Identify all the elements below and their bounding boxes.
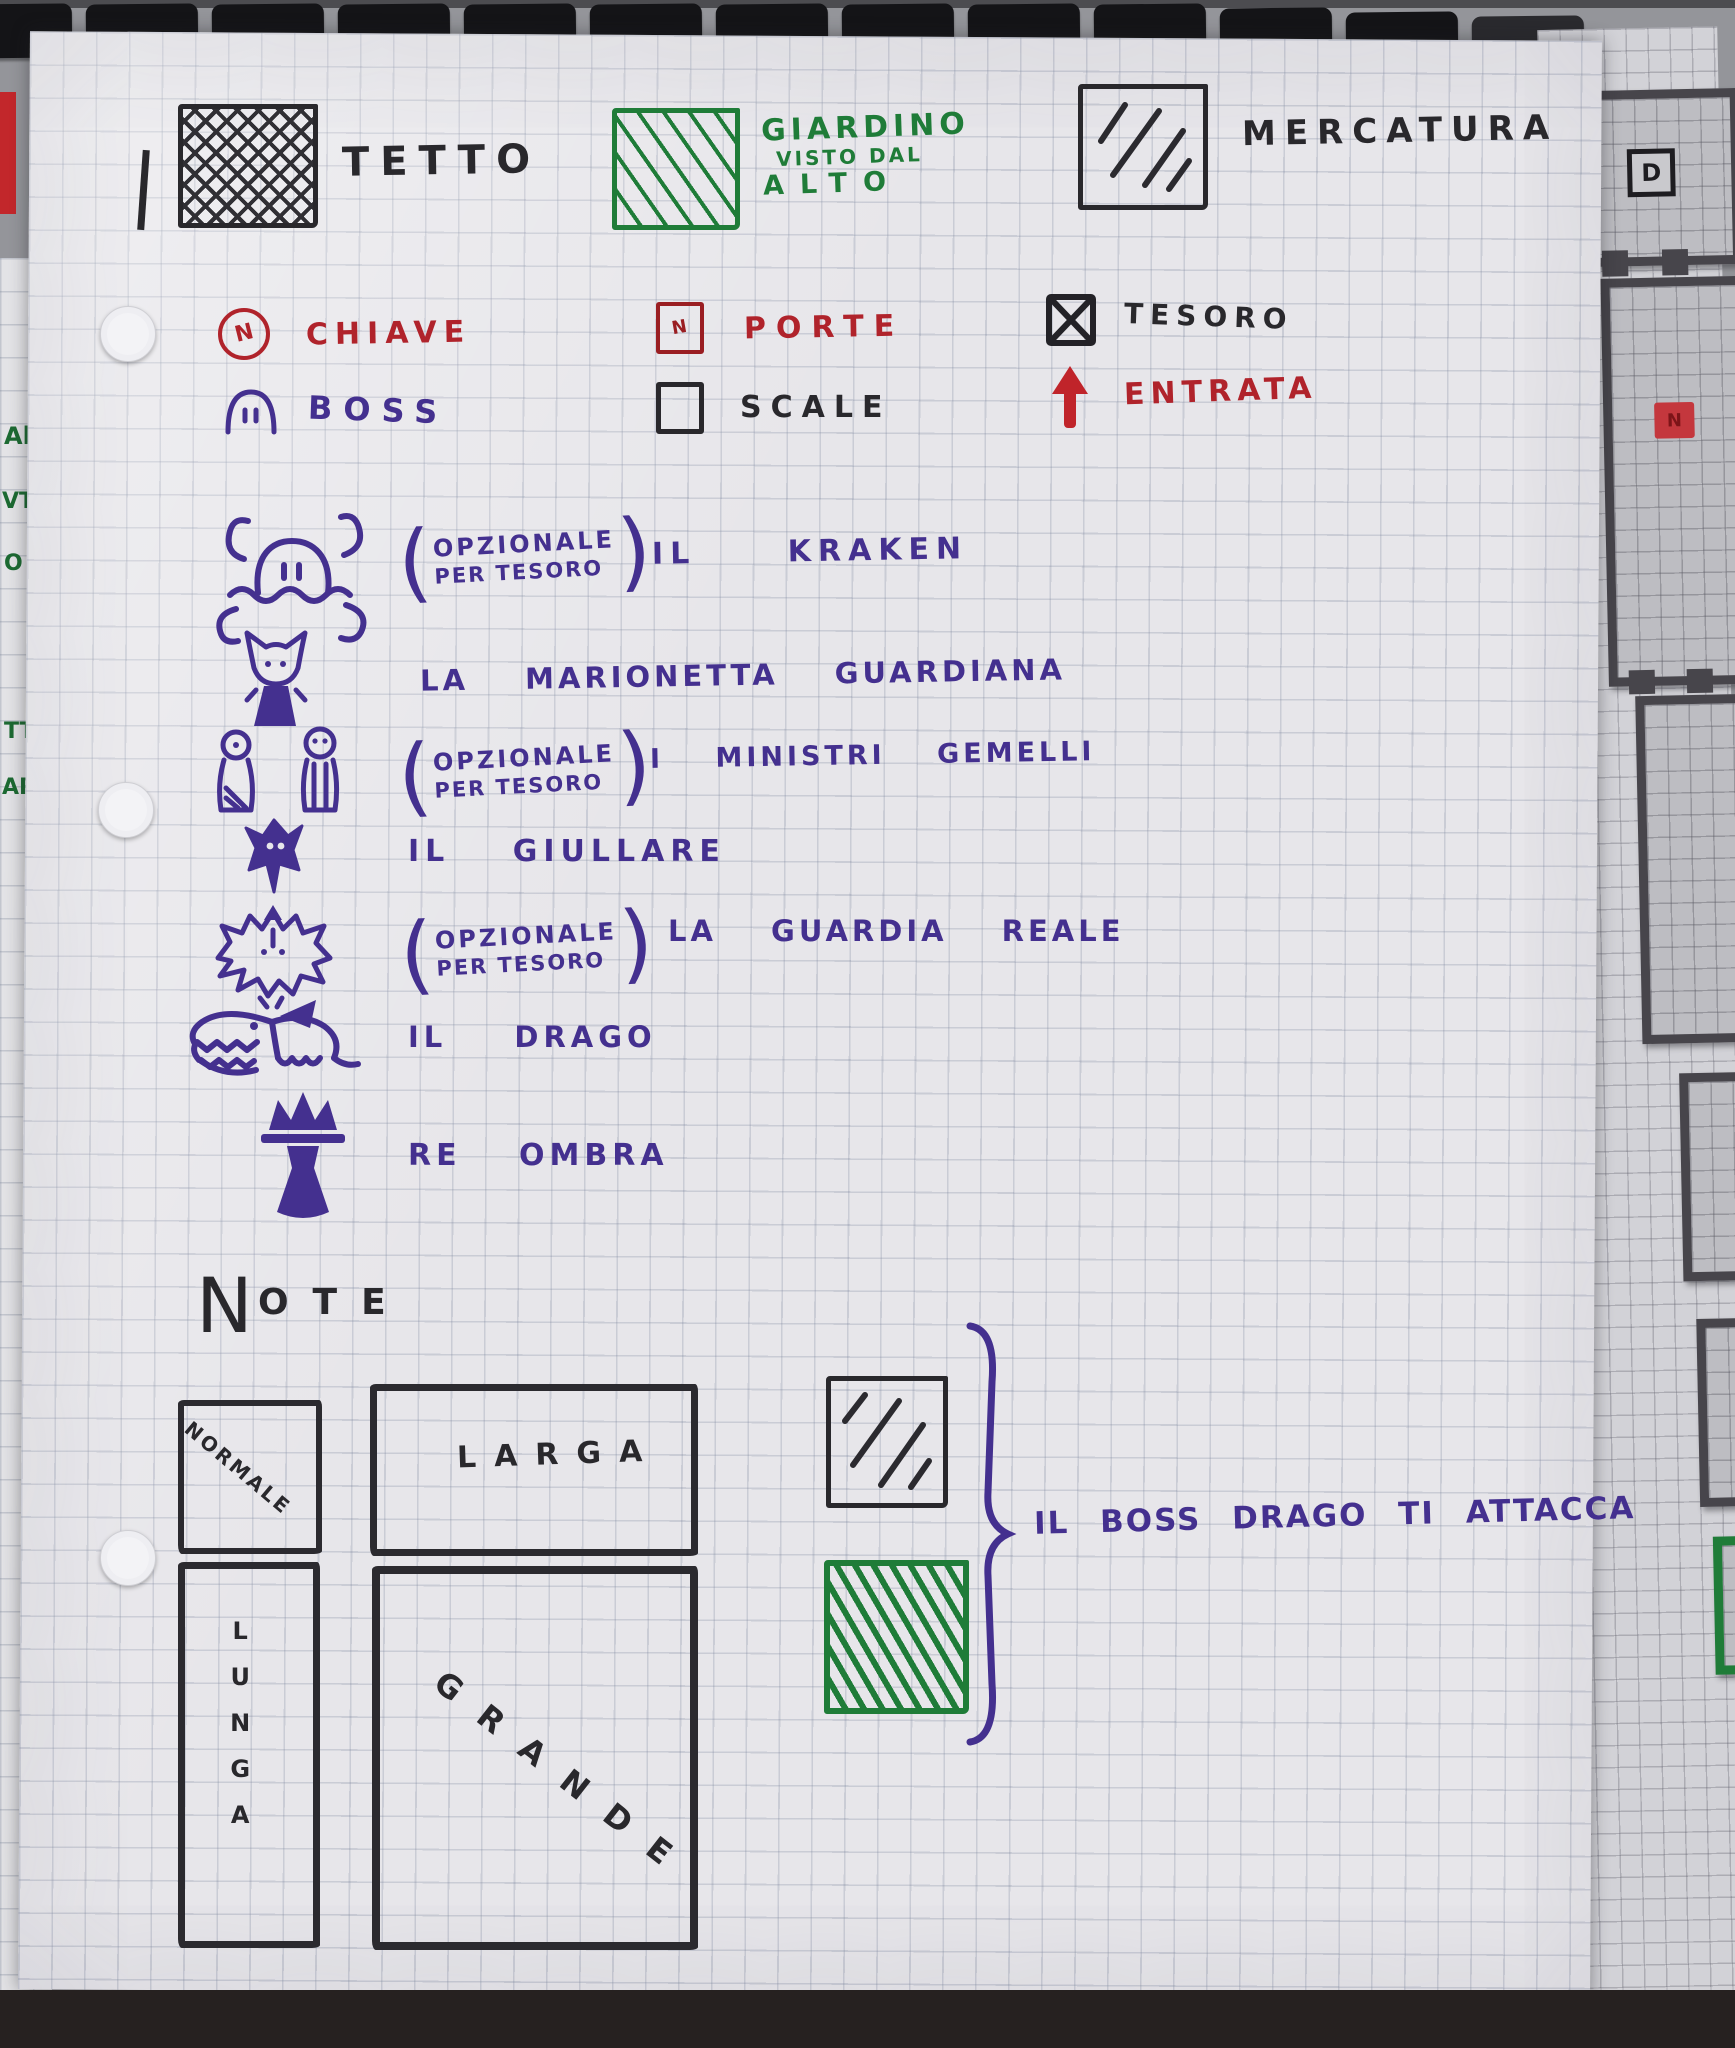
- paren-open: (: [396, 731, 434, 823]
- sparse-hatch-icon: [831, 1381, 943, 1503]
- red-object-edge: [0, 92, 16, 214]
- room-size-lunga-box: LUNGA: [178, 1562, 320, 1948]
- symbol-label-entrata: ENTRATA: [1124, 373, 1318, 411]
- notes-heading: N OTE: [196, 1266, 410, 1346]
- bestiary-name-giullare: IL GIULLARE: [408, 836, 726, 868]
- paren-close: ): [617, 897, 655, 989]
- scrap-text: O: [4, 552, 23, 575]
- hole-punch: [100, 1530, 156, 1586]
- curly-brace: [962, 1322, 1020, 1746]
- paren-open: (: [396, 517, 434, 609]
- room-size-normale-box: NORMALE: [178, 1400, 322, 1554]
- paren-close: ): [615, 505, 653, 597]
- bestiary-name-kraken: IL KRAKEN: [652, 533, 969, 570]
- bestiary-name-reombra: RE OMBRA: [408, 1140, 669, 1172]
- map-room: [1713, 1535, 1735, 1675]
- key-circle-icon: N: [218, 308, 270, 360]
- terrain-label-tetto: TETTO: [342, 138, 542, 183]
- map-door-gap: [1629, 670, 1655, 695]
- stairs-square-icon: [656, 382, 704, 434]
- treasure-xbox-icon: [1044, 292, 1098, 348]
- twin-ministers-icon: [208, 728, 368, 820]
- map-room: D: [1581, 88, 1735, 267]
- kraken-icon: [196, 505, 391, 630]
- terrain-label-mercatura: MERCATURA: [1242, 111, 1559, 153]
- sparse-hatch-icon: [1083, 89, 1203, 205]
- map-room: [1679, 1071, 1735, 1281]
- desk-edge: [0, 1990, 1735, 2048]
- giardino-note-swatch: [824, 1560, 969, 1714]
- paren-close: ): [615, 719, 653, 811]
- symbol-label-porte: PORTE: [744, 311, 905, 345]
- jester-icon: [243, 816, 307, 896]
- entrance-arrow-icon: [1050, 364, 1090, 430]
- optional-note: ( OPZIONALE PER TESORO ): [396, 719, 654, 822]
- hole-punch: [98, 782, 154, 838]
- map-door-gap: [1662, 249, 1689, 276]
- room-size-label: LUNGA: [227, 1617, 252, 1847]
- map-room: [1696, 1317, 1735, 1507]
- bestiary-name-drago: IL DRAGO: [408, 1022, 657, 1052]
- door-square-icon: N: [656, 302, 704, 354]
- map-door-d-marker: D: [1627, 148, 1676, 197]
- symbol-label-tesoro: TESORO: [1124, 299, 1294, 334]
- room-size-label: NORMALE: [181, 1418, 296, 1519]
- map-door-gap: [1602, 250, 1629, 277]
- map-corridor: N: [1600, 276, 1735, 687]
- optional-note: ( OPZIONALE PER TESORO ): [398, 897, 656, 1000]
- optional-note: ( OPZIONALE PER TESORO ): [396, 505, 654, 608]
- terrain-label-giardino: GIARDINO VISTO DAL ALTO: [761, 108, 973, 200]
- room-size-larga-box: LARGA: [370, 1384, 698, 1556]
- hole-punch: [100, 306, 156, 362]
- symbol-label-chiave: CHIAVE: [306, 317, 472, 351]
- guardian-puppet-icon: [242, 628, 310, 732]
- garden-hatch-swatch: [612, 108, 740, 230]
- symbol-label-boss: BOSS: [307, 392, 448, 430]
- roof-crosshatch-swatch: [178, 104, 318, 228]
- room-size-grande-box: GRANDE: [372, 1566, 698, 1950]
- symbol-label-scale: SCALE: [740, 392, 891, 424]
- boss-arch-icon: [220, 382, 282, 436]
- mercatura-note-swatch: [826, 1376, 948, 1508]
- map-red-door-marker: N: [1654, 402, 1695, 439]
- room-size-label: LARGA: [457, 1435, 661, 1474]
- shadow-king-icon: [255, 1088, 351, 1228]
- room-size-label: GRANDE: [428, 1666, 700, 1889]
- photo-of-notebook-legend: Al VTI O TT AR D N TETTO GIARDINO VISTO …: [0, 0, 1735, 2048]
- map-door-gap: [1687, 669, 1713, 694]
- map-room: [1635, 694, 1735, 1045]
- bestiary-name-guardia: LA GUARDIA REALE: [668, 916, 1125, 946]
- paren-open: (: [398, 909, 436, 1001]
- mercatura-hatch-swatch: [1078, 84, 1208, 210]
